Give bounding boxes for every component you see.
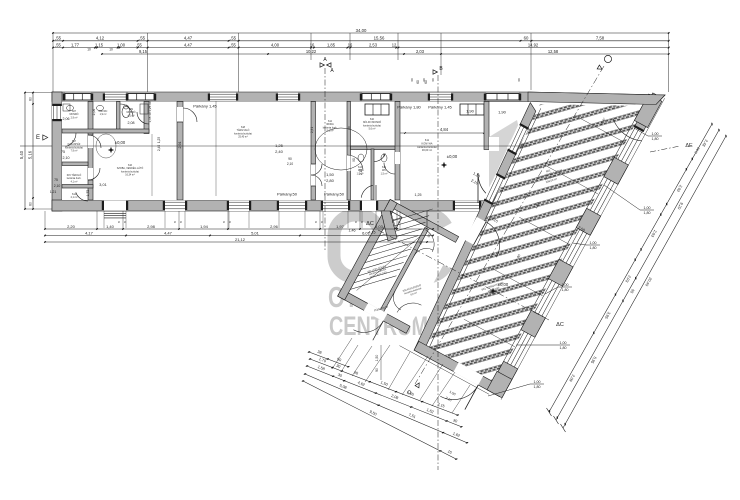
svg-text:,55: ,55 [139,36,146,41]
svg-text:60: 60 [382,153,386,157]
svg-text:2,91: 2,91 [178,142,182,149]
svg-text:16: 16 [310,42,315,47]
svg-text:25,40 m²: 25,40 m² [238,136,248,139]
svg-text:1,80: 1,80 [534,385,541,389]
svg-text:ΔE: ΔE [685,143,693,149]
svg-text:2,06: 2,06 [63,117,70,121]
svg-text:1,80: 1,80 [560,346,567,350]
svg-text:,55: ,55 [55,36,62,41]
svg-text:1,72: 1,72 [86,190,90,197]
svg-text:1,21: 1,21 [50,190,57,194]
svg-text:90: 90 [352,158,356,162]
svg-text:1,00: 1,00 [560,341,567,345]
svg-text:2,10: 2,10 [63,156,70,160]
svg-text:60: 60 [524,36,529,41]
svg-text:15,56: 15,56 [374,36,385,41]
svg-text:kerámia burkolat: kerámia burkolat [417,145,436,149]
svg-text:,55: ,55 [136,42,142,47]
svg-text:2,98: 2,98 [147,224,156,229]
svg-text:,55: ,55 [55,42,61,47]
svg-text:60: 60 [416,80,420,84]
svg-text:2,10: 2,10 [54,184,61,188]
svg-text:±0,00: ±0,00 [447,154,458,159]
svg-text:1,97: 1,97 [336,224,345,229]
svg-text:7,9 m²: 7,9 m² [71,150,78,153]
svg-text:10,22: 10,22 [306,49,317,54]
svg-text:1,90: 1,90 [466,109,475,114]
svg-text:ΔC: ΔC [366,221,374,227]
svg-text:60: 60 [29,202,33,206]
svg-text:90: 90 [288,157,292,161]
svg-text:1,15 10 1,25 10: 1,15 10 1,25 10 [148,101,152,122]
svg-text:1,90: 1,90 [498,110,507,115]
svg-text:2,91: 2,91 [310,127,314,133]
svg-text:1,00: 1,00 [562,283,569,287]
svg-text:4,47: 4,47 [184,42,193,47]
svg-text:2,80: 2,80 [326,178,335,183]
svg-text:1,25: 1,25 [415,193,422,197]
svg-text:2,53: 2,53 [369,42,378,47]
svg-text:10: 10 [87,48,91,52]
svg-text:60: 60 [410,78,414,82]
svg-text:1,50: 1,50 [326,172,335,177]
svg-text:1,5 m²: 1,5 m² [381,172,388,175]
svg-text:34,00: 34,00 [356,28,367,33]
svg-text:10: 10 [109,48,113,52]
svg-text:ΔC: ΔC [556,322,564,328]
svg-text:2,40: 2,40 [275,149,284,154]
svg-text:90: 90 [375,368,379,372]
svg-text:,55: ,55 [230,42,236,47]
svg-text:5,16: 5,16 [28,150,33,159]
svg-text:21,12: 21,12 [235,237,246,242]
svg-text:2,1 m²: 2,1 m² [71,196,78,199]
svg-text:16: 16 [348,42,353,47]
svg-text:2,40: 2,40 [157,145,161,151]
svg-text:1,80: 1,80 [562,288,569,292]
svg-text:Párkány,50: Párkány,50 [277,192,298,197]
svg-text:2,20: 2,20 [67,224,76,229]
svg-text:9,15: 9,15 [139,49,148,54]
svg-text:9,1 m²: 9,1 m² [327,130,334,133]
svg-text:2,08: 2,08 [128,121,135,125]
svg-text:1,25: 1,25 [157,137,161,143]
svg-text:1,00: 1,00 [644,206,651,210]
svg-text:4,12: 4,12 [96,36,105,41]
svg-text:5,40: 5,40 [19,150,24,159]
svg-text:2,03: 2,03 [375,224,384,229]
svg-text:Párkány,50: Párkány,50 [324,192,345,197]
svg-text:4,1 m²: 4,1 m² [71,180,78,183]
svg-text:75: 75 [61,150,65,154]
svg-text:60: 60 [424,80,428,84]
svg-text:5,01: 5,01 [251,230,260,235]
svg-text:2,10: 2,10 [359,169,363,175]
svg-text:5,6 m²: 5,6 m² [369,128,376,131]
svg-text:14,92: 14,92 [528,42,539,47]
svg-text:E: E [36,135,40,141]
svg-text:90: 90 [347,126,351,130]
svg-text:6,01: 6,01 [362,230,371,235]
svg-text:7,58: 7,58 [596,36,605,41]
svg-text:611: 611 [425,138,430,142]
svg-text:1,25: 1,25 [275,143,284,148]
svg-text:4,47: 4,47 [164,230,173,235]
svg-text:30,00 m²: 30,00 m² [422,148,432,152]
svg-text:Párkány 1,45: Párkány 1,45 [193,104,217,109]
svg-text:±0,00: ±0,00 [115,140,126,145]
svg-text:1,85: 1,85 [327,42,336,47]
svg-text:4,47: 4,47 [184,36,193,41]
svg-text:4,84: 4,84 [440,127,449,132]
svg-text:1,9 m²: 1,9 m² [100,113,107,116]
svg-text:2,03: 2,03 [416,49,425,54]
svg-text:1,80: 1,80 [652,137,659,141]
svg-text:1,00: 1,00 [652,132,659,136]
svg-text:1,50: 1,50 [375,355,379,362]
svg-text:2,10: 2,10 [287,162,293,166]
svg-text:2,96: 2,96 [270,224,279,229]
svg-text:75: 75 [54,178,58,182]
svg-text:1,00: 1,00 [590,241,597,245]
svg-text:3,01: 3,01 [99,183,106,187]
svg-text:12,58: 12,58 [548,49,559,54]
svg-text:KONYHA: KONYHA [422,141,433,145]
svg-text:4,17: 4,17 [85,230,94,235]
svg-text:,55: ,55 [230,36,237,41]
svg-text:1,80: 1,80 [590,246,597,250]
svg-text:1,00: 1,00 [117,42,126,47]
svg-text:1,00: 1,00 [534,380,541,384]
svg-text:Párkány 1,80: Párkány 1,80 [397,105,421,110]
svg-text:4,00: 4,00 [271,42,280,47]
svg-text:60: 60 [431,78,435,82]
svg-text:1,40: 1,40 [106,224,115,229]
svg-text:1,94: 1,94 [200,224,209,229]
svg-text:2,06: 2,06 [92,109,96,116]
svg-text:1,80: 1,80 [644,211,651,215]
svg-text:±0,00: ±0,00 [498,282,509,287]
svg-text:16,34 m²: 16,34 m² [125,174,135,177]
svg-text:4,1 m²: 4,1 m² [128,114,135,117]
svg-text:1,15: 1,15 [95,42,104,47]
svg-text:60: 60 [517,78,521,82]
svg-text:12: 12 [392,42,397,47]
svg-text:Párkány 1,45: Párkány 1,45 [428,105,452,110]
svg-text:1,77: 1,77 [71,42,80,47]
svg-text:2,9 m²: 2,9 m² [71,116,78,119]
svg-text:60: 60 [29,97,33,101]
